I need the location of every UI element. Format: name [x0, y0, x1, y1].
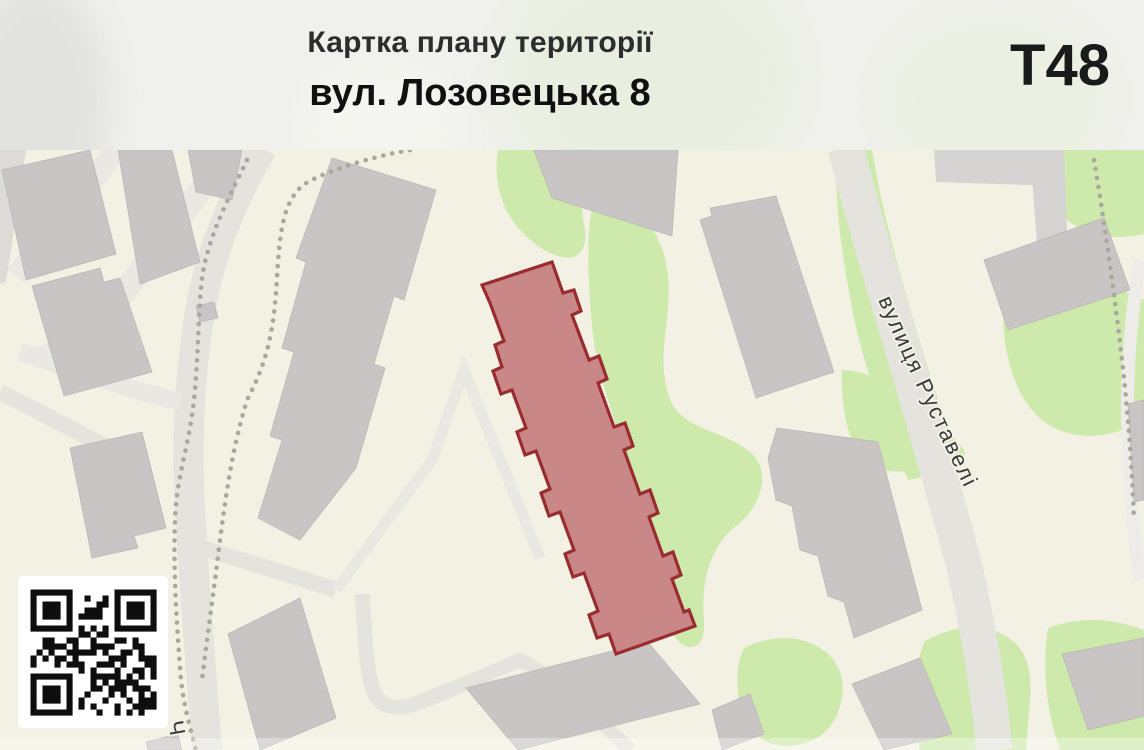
territory-plan-card: Картка плану території вул. Лозовецька 8…	[0, 0, 1144, 750]
header-titles: Картка плану території вул. Лозовецька 8	[0, 0, 960, 115]
map-canvas: вулиця Руставелі Ч	[0, 150, 1144, 750]
card-header: Картка плану території вул. Лозовецька 8…	[0, 0, 1144, 150]
qr-code	[18, 576, 168, 728]
bottom-fade	[0, 738, 1144, 750]
card-title: Картка плану території	[0, 26, 960, 60]
sheet-code: T48	[1010, 32, 1110, 99]
card-address: вул. Лозовецька 8	[0, 72, 960, 115]
